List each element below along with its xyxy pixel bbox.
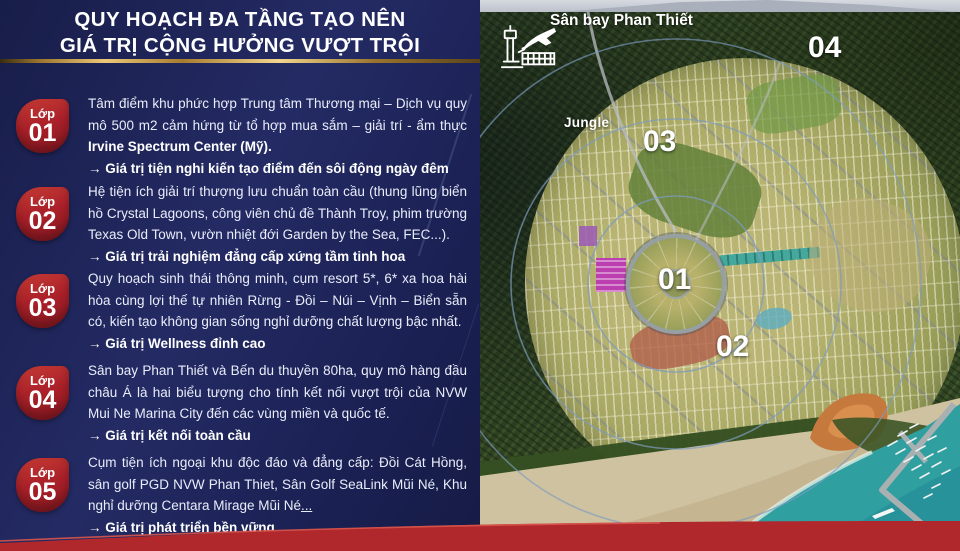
layer-text-04: Sân bay Phan Thiết và Bến du thuyền 80ha…: [88, 360, 467, 446]
layer-row-05: Lớp 05 Cụm tiện ích ngoại khu độc đáo và…: [0, 452, 480, 538]
layer-badge-05: Lớp 05: [16, 458, 69, 512]
boulevard-road: [696, 62, 780, 240]
airport-label: Sân bay Phan Thiết: [550, 12, 693, 30]
layer-body: Cụm tiện ích ngoại khu độc đáo và đẳng c…: [88, 455, 467, 513]
badge-number: 04: [29, 388, 57, 412]
layer-conclusion: → Giá trị Wellness đỉnh cao: [88, 333, 467, 355]
badge-number: 05: [29, 480, 57, 504]
layer-text-05: Cụm tiện ích ngoại khu độc đáo và đẳng c…: [88, 452, 467, 538]
infographic-slide: QUY HOẠCH ĐA TẦNG TẠO NÊN GIÁ TRỊ CỘNG H…: [0, 0, 960, 551]
layer-conclusion: → Giá trị trải nghiệm đẳng cấp xứng tầm …: [88, 246, 467, 268]
airport-icon: [500, 24, 558, 71]
left-panel: QUY HOẠCH ĐA TẦNG TẠO NÊN GIÁ TRỊ CỘNG H…: [0, 0, 480, 551]
layer-badge-03: Lớp 03: [16, 274, 69, 328]
layer-body-bold: Irvine Spectrum Center (Mỹ).: [88, 139, 272, 154]
jungle-label: Jungle: [564, 115, 609, 130]
layer-row-03: Lớp 03 Quy hoạch sinh thái thông minh, c…: [0, 268, 480, 354]
gold-divider: [0, 59, 480, 63]
layer-text-03: Quy hoạch sinh thái thông minh, cụm reso…: [88, 268, 467, 354]
layer-badge-04: Lớp 04: [16, 366, 69, 420]
title-line-1: QUY HOẠCH ĐA TẦNG TẠO NÊN: [0, 7, 480, 33]
masterplan-map: Sân bay Phan Thiết Jungle 01 02 03 04: [480, 0, 960, 551]
layer-row-04: Lớp 04 Sân bay Phan Thiết và Bến du thuy…: [0, 360, 480, 446]
badge-number: 02: [29, 209, 57, 233]
badge-number: 01: [29, 121, 57, 145]
layer-conclusion: → Giá trị kết nối toàn cầu: [88, 425, 467, 447]
layer-row-01: Lớp 01 Tâm điểm khu phức hợp Trung tâm T…: [0, 93, 480, 179]
layer-badge-01: Lớp 01: [16, 99, 69, 153]
layer-conclusion: → Giá trị phát triển bền vững: [88, 517, 467, 539]
layer-row-02: Lớp 02 Hệ tiện ích giải trí thượng lưu c…: [0, 181, 480, 267]
layer-conclusion: → Giá trị tiện nghi kiến tạo điểm đến sô…: [88, 158, 467, 180]
layer-body: Quy hoạch sinh thái thông minh, cụm reso…: [88, 271, 467, 329]
zone-label-02: 02: [716, 330, 749, 364]
layer-body: Hệ tiện ích giải trí thượng lưu chuẩn to…: [88, 184, 467, 242]
layer-body: Tâm điểm khu phức hợp Trung tâm Thương m…: [88, 96, 467, 133]
zone-label-03: 03: [643, 125, 676, 159]
layer-body: Sân bay Phan Thiết và Bến du thuyền 80ha…: [88, 363, 467, 421]
layer-badge-02: Lớp 02: [16, 187, 69, 241]
layer-body-underline: ...: [301, 498, 312, 513]
badge-number: 03: [29, 296, 57, 320]
title-line-2: GIÁ TRỊ CỘNG HƯỞNG VƯỢT TRỘI: [0, 33, 480, 59]
zone-label-01: 01: [658, 263, 691, 297]
layer-text-01: Tâm điểm khu phức hợp Trung tâm Thương m…: [88, 93, 467, 179]
zone-label-04: 04: [808, 31, 841, 65]
map-overlay-graphics: [480, 0, 960, 551]
page-title: QUY HOẠCH ĐA TẦNG TẠO NÊN GIÁ TRỊ CỘNG H…: [0, 7, 480, 59]
layer-text-02: Hệ tiện ích giải trí thượng lưu chuẩn to…: [88, 181, 467, 267]
